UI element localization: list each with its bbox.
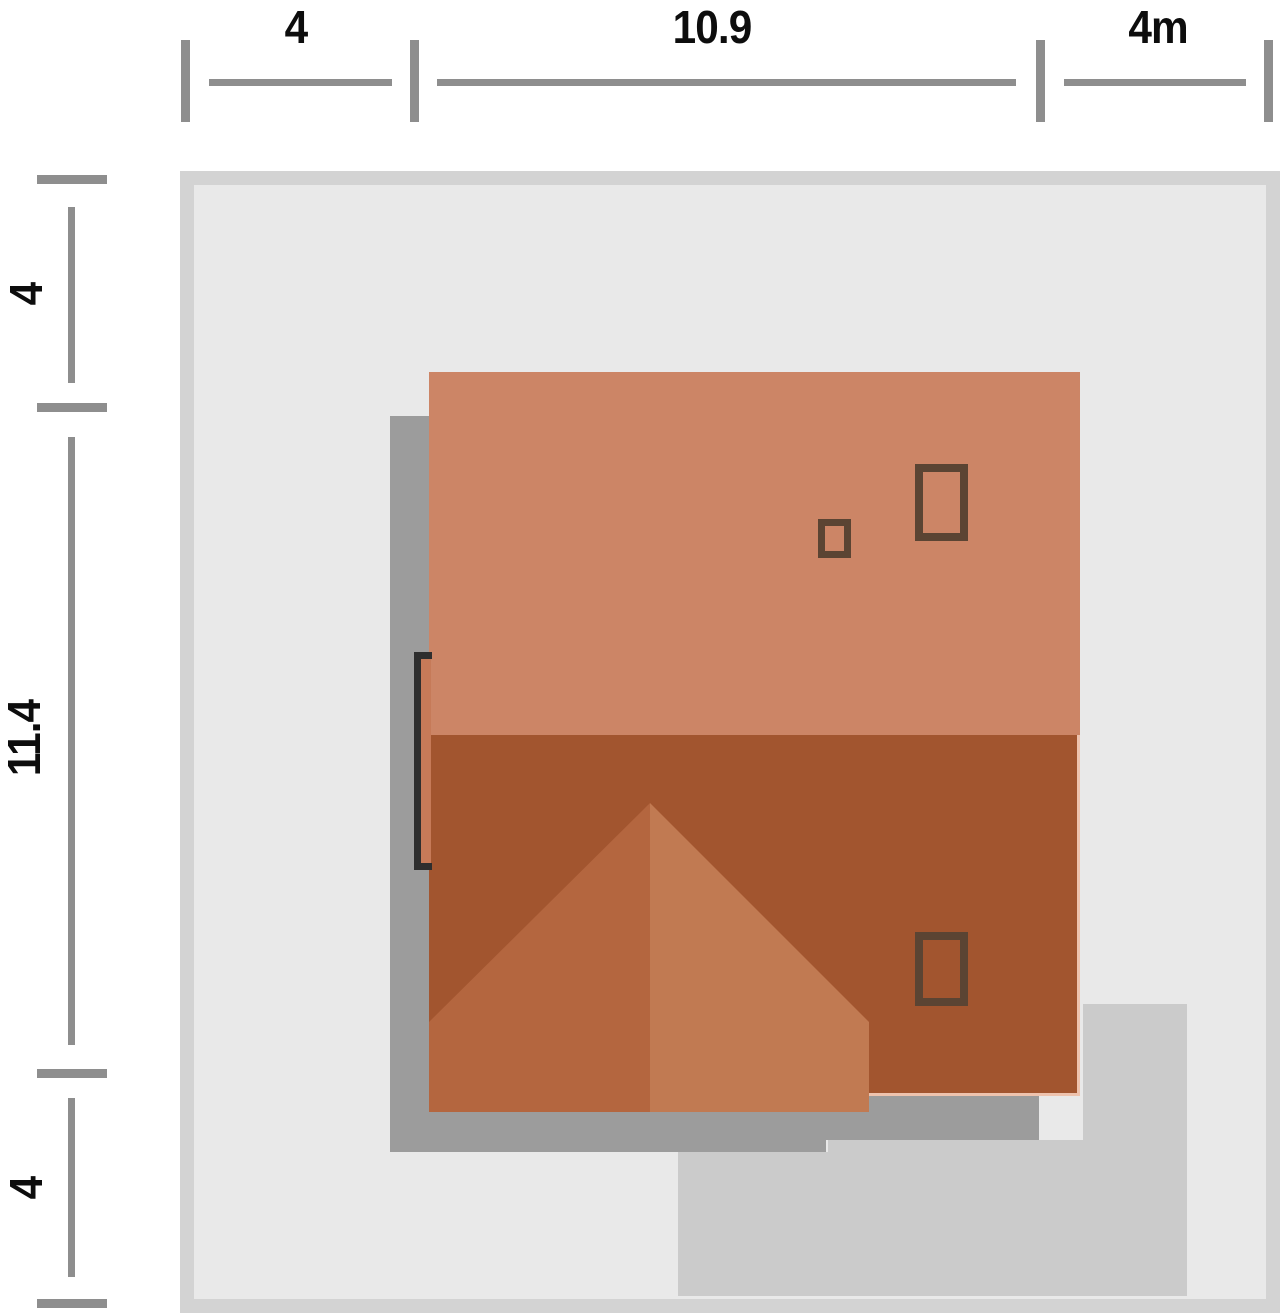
left-dimension-lines xyxy=(68,207,75,1277)
left-dim-label-2: 11.4 xyxy=(0,700,51,776)
top-dim-label-3: 4m xyxy=(1128,0,1187,54)
door-leaf xyxy=(421,659,431,863)
top-tick-3 xyxy=(1036,40,1045,122)
top-dim-label-1: 4 xyxy=(285,0,308,54)
top-dimension-lines xyxy=(209,79,1246,86)
left-dim-line-2 xyxy=(68,437,75,1045)
left-tick-3 xyxy=(37,1069,107,1078)
chimney-small xyxy=(822,523,848,555)
door-marker-bottom-cap xyxy=(414,863,432,870)
door-marker-top-cap xyxy=(414,652,432,659)
top-tick-1 xyxy=(181,40,190,122)
left-dim-line-3 xyxy=(68,1098,75,1277)
chimney-large-upper xyxy=(919,468,964,537)
chimney-lower xyxy=(919,936,964,1002)
top-dim-label-2: 10.9 xyxy=(673,0,752,54)
door-marker-bar xyxy=(414,652,421,870)
left-tick-1 xyxy=(37,175,107,184)
top-tick-4 xyxy=(1264,40,1273,122)
left-tick-4 xyxy=(37,1299,107,1308)
left-dim-line-1 xyxy=(68,207,75,383)
left-dim-label-3: 4 xyxy=(0,1177,53,1200)
top-tick-2 xyxy=(410,40,419,122)
site-plan-drawing xyxy=(0,0,1280,1313)
site-plan-canvas: 4 10.9 4m 4 11.4 4 xyxy=(0,0,1280,1313)
top-dim-line-3 xyxy=(1064,79,1246,86)
top-dim-line-2 xyxy=(437,79,1016,86)
left-tick-2 xyxy=(37,403,107,412)
left-dim-label-1: 4 xyxy=(0,283,53,306)
top-dim-line-1 xyxy=(209,79,392,86)
